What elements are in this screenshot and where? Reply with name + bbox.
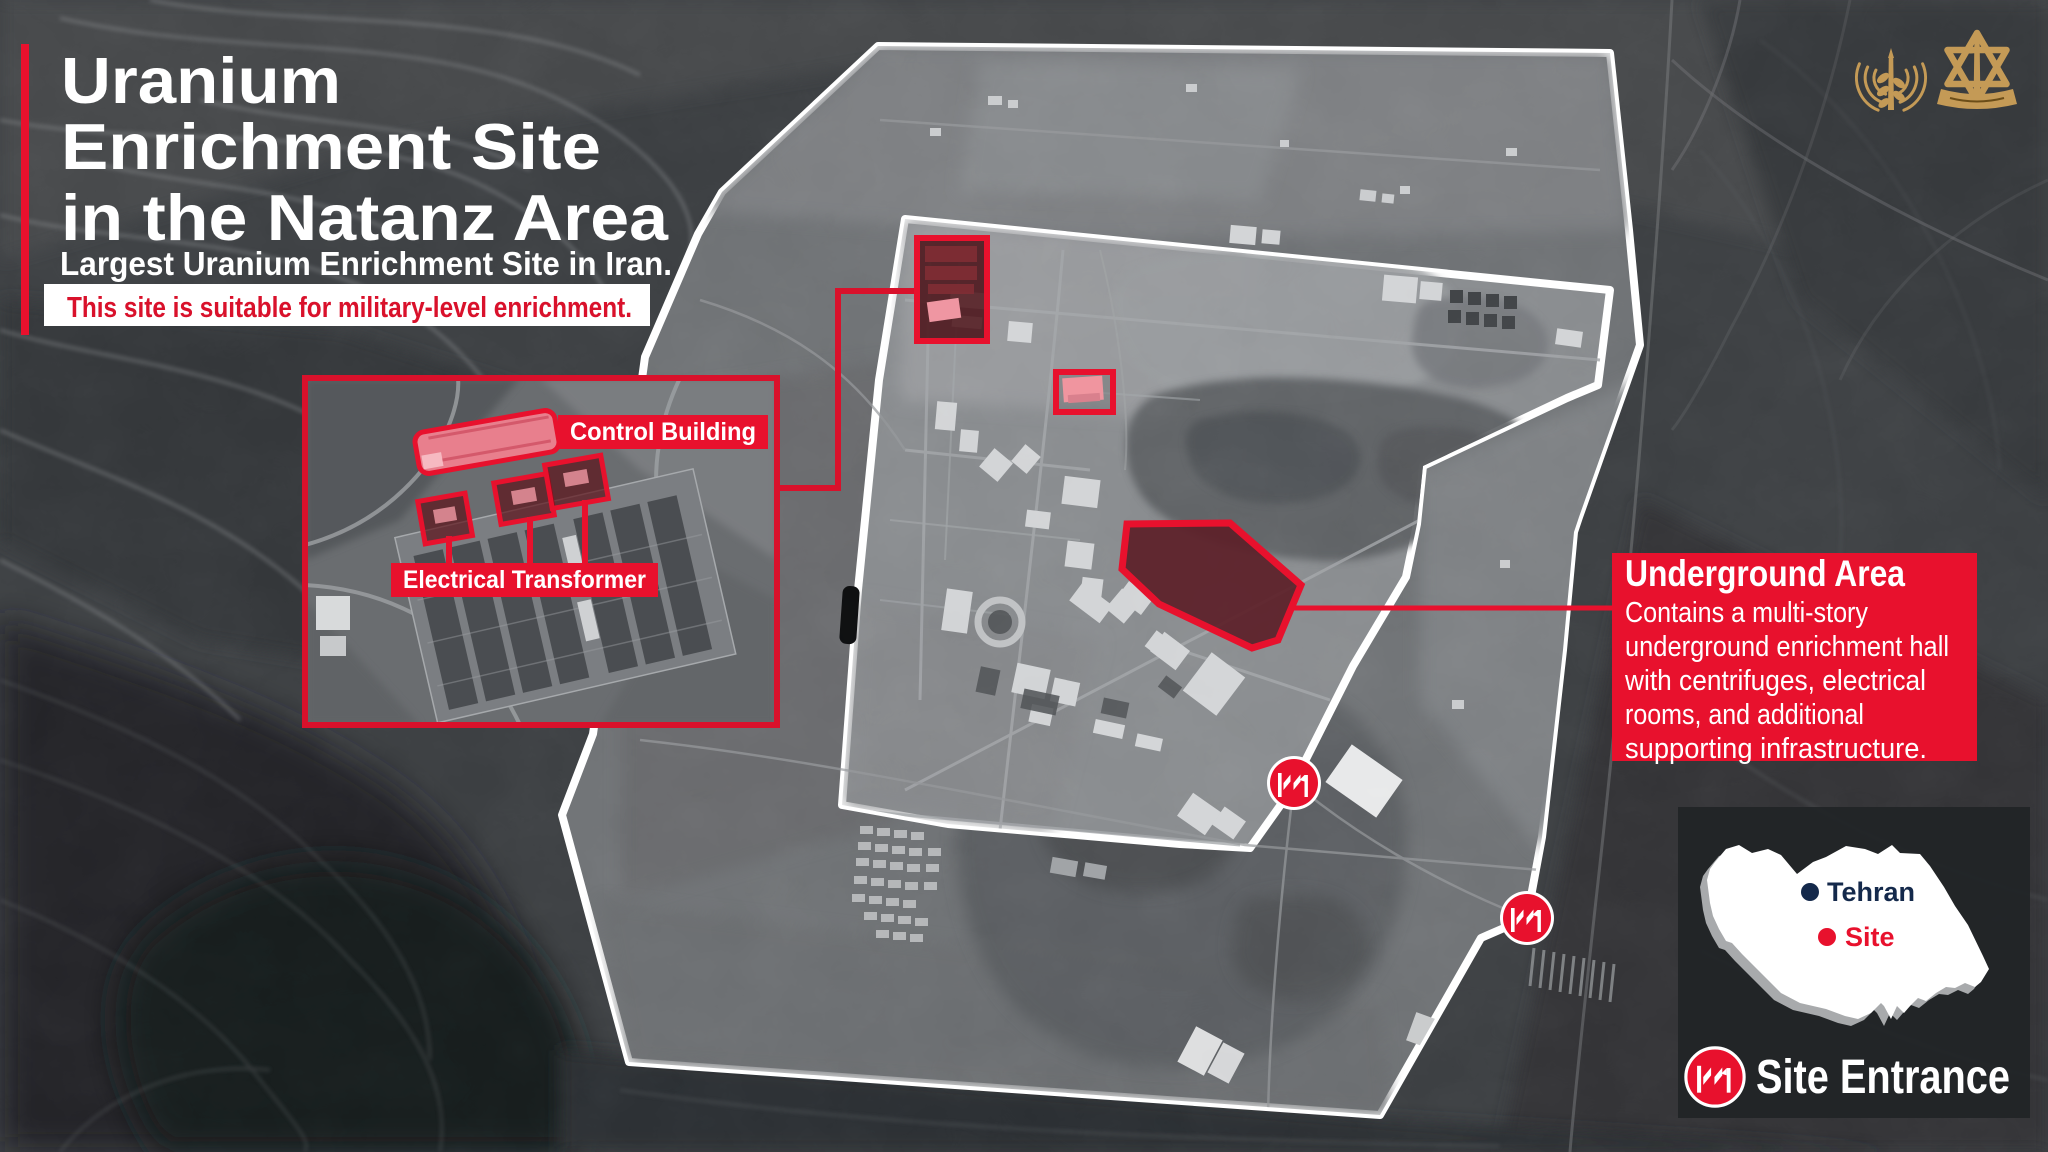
svg-text:Electrical Transformer: Electrical Transformer xyxy=(403,566,646,594)
svg-text:supporting infrastructure.: supporting infrastructure. xyxy=(1625,733,1927,765)
svg-text:This site is suitable for mili: This site is suitable for military-level… xyxy=(67,292,632,324)
svg-text:Enrichment Site: Enrichment Site xyxy=(61,110,601,183)
svg-text:in the Natanz Area: in the Natanz Area xyxy=(61,181,669,254)
svg-text:Control Building: Control Building xyxy=(570,418,756,446)
svg-text:Largest Uranium Enrichment Sit: Largest Uranium Enrichment Site in Iran. xyxy=(60,245,672,282)
svg-text:with centrifuges, electrical: with centrifuges, electrical xyxy=(1624,665,1926,697)
svg-text:Underground Area: Underground Area xyxy=(1625,553,1905,594)
svg-text:rooms, and additional: rooms, and additional xyxy=(1625,699,1864,731)
svg-text:Tehran: Tehran xyxy=(1827,877,1915,907)
svg-text:Contains a multi-story: Contains a multi-story xyxy=(1625,597,1868,629)
svg-text:Site: Site xyxy=(1845,922,1895,952)
svg-text:Site Entrance: Site Entrance xyxy=(1756,1051,2010,1104)
svg-text:Uranium: Uranium xyxy=(61,44,341,117)
svg-text:underground enrichment hall: underground enrichment hall xyxy=(1625,631,1949,663)
